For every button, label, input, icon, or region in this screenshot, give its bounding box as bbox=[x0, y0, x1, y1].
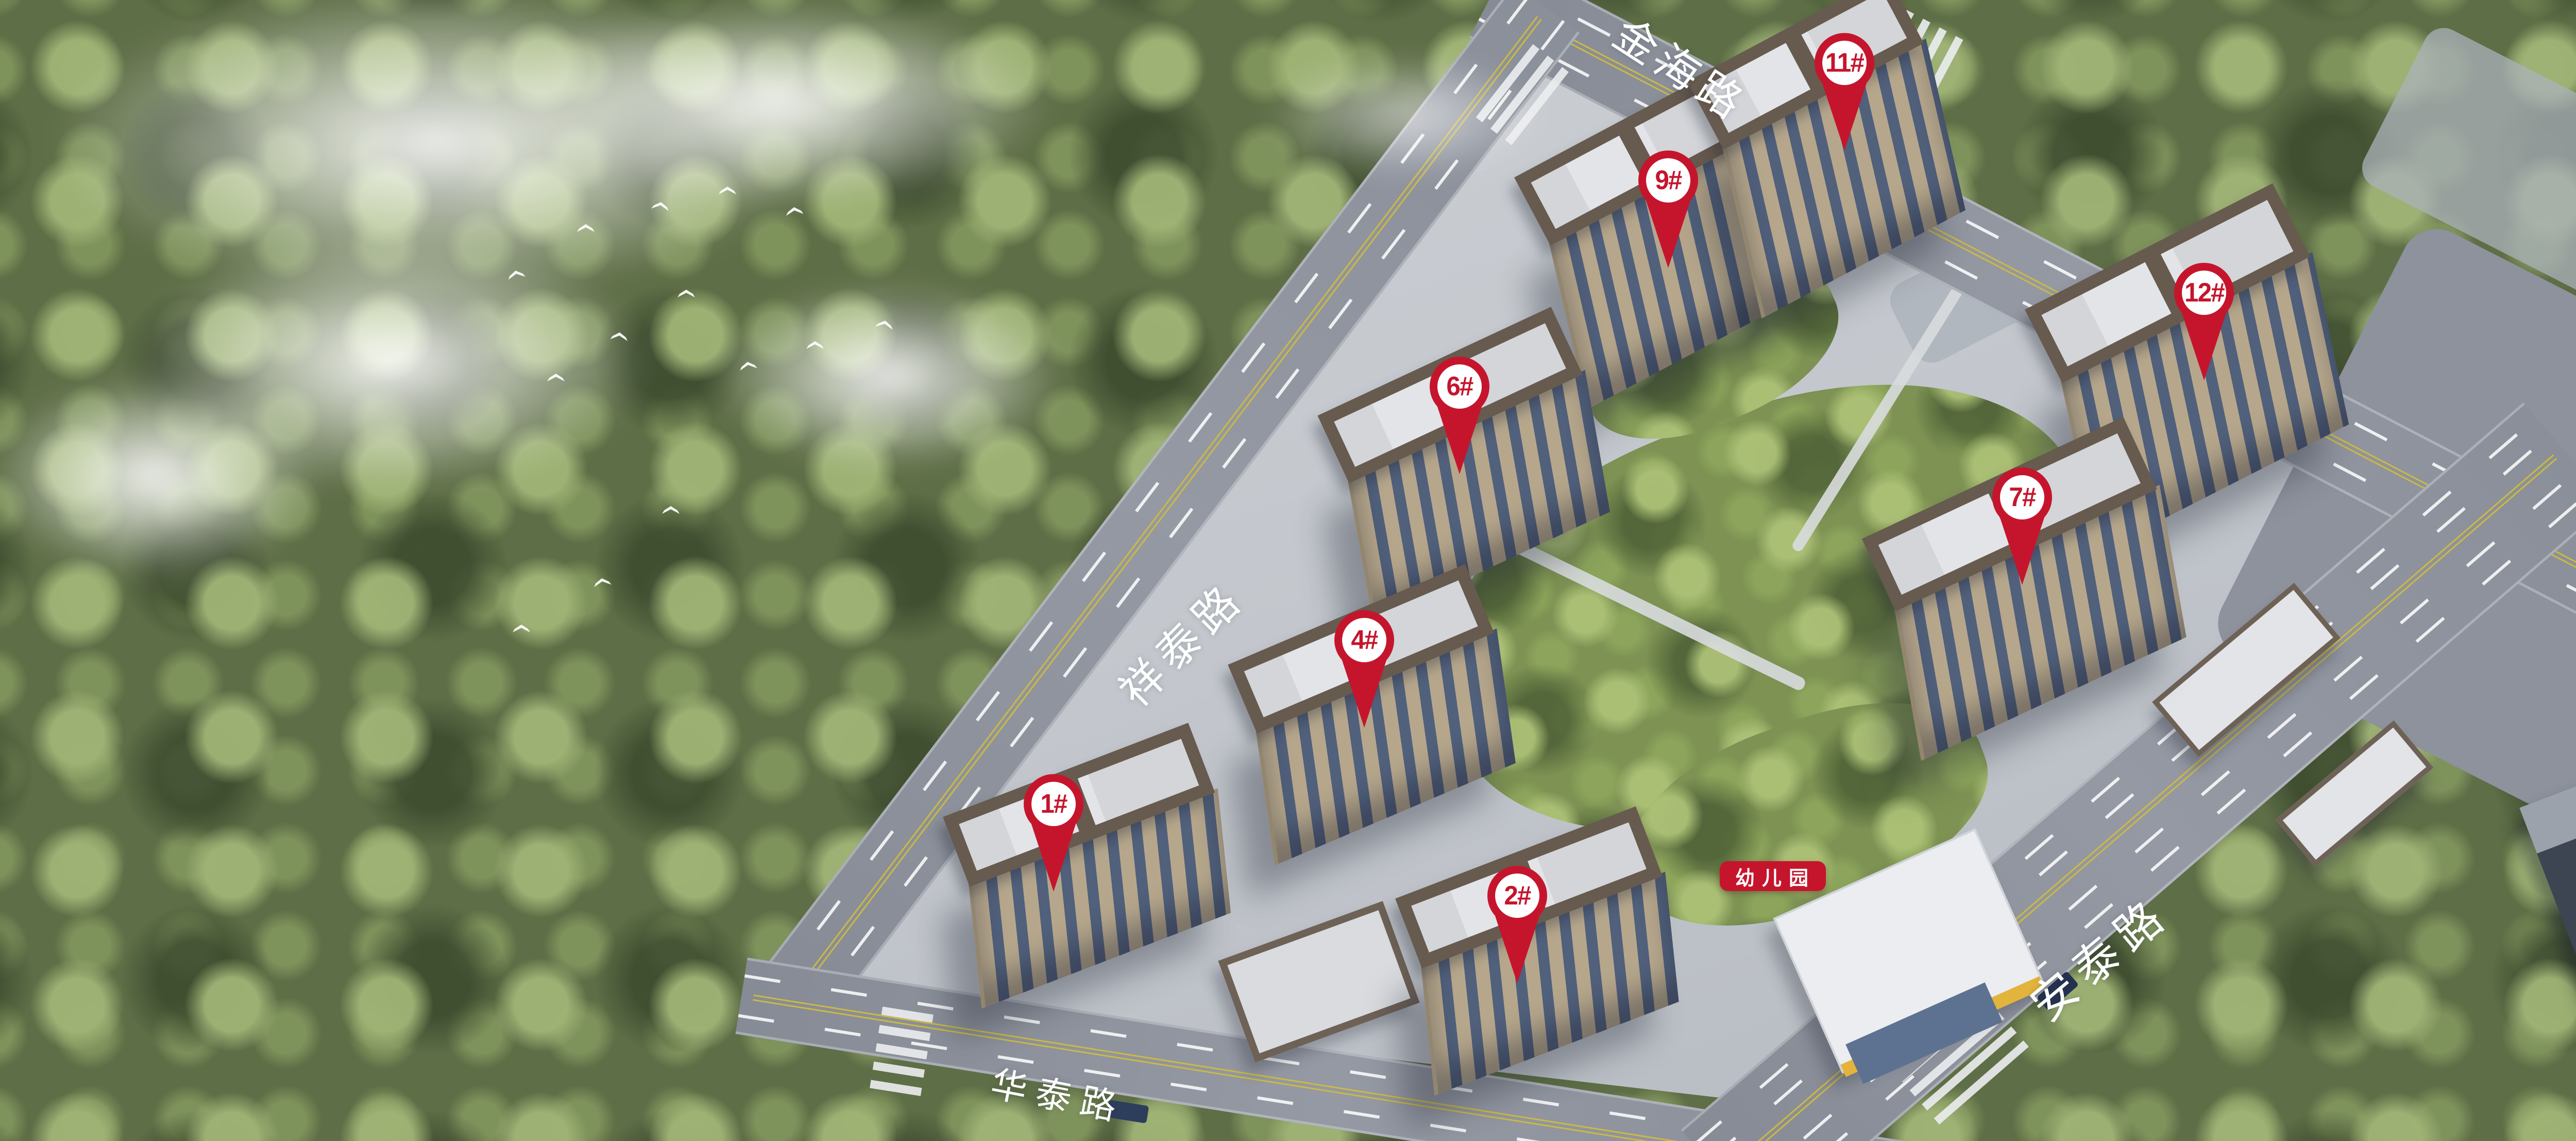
pin-label: 9# bbox=[1655, 167, 1681, 194]
pin-label: 1# bbox=[1040, 791, 1066, 817]
pin-circle-icon: 1# bbox=[1024, 774, 1083, 834]
pin-circle-icon: 12# bbox=[2174, 263, 2234, 323]
pin-circle-icon: 6# bbox=[1430, 357, 1489, 416]
pin-label: 12# bbox=[2184, 279, 2224, 306]
pin-circle-icon: 2# bbox=[1487, 866, 1547, 926]
kindergarten-badge: 幼儿园 bbox=[1720, 861, 1826, 891]
aerial-site-plan: 金海路 祥泰路 安泰路 华泰路 幼儿园 鸟瞰图 1# 2# 4# 6# 7# 9… bbox=[0, 0, 2576, 1141]
pin-label: 2# bbox=[1504, 882, 1530, 909]
pin-label: 7# bbox=[2009, 484, 2035, 511]
pin-circle-icon: 4# bbox=[1334, 610, 1394, 670]
pin-label: 11# bbox=[1825, 49, 1863, 76]
pin-circle-icon: 11# bbox=[1815, 33, 1874, 93]
pin-label: 6# bbox=[1446, 373, 1472, 400]
pin-circle-icon: 7# bbox=[1992, 467, 2052, 527]
pin-label: 4# bbox=[1351, 627, 1377, 653]
pin-circle-icon: 9# bbox=[1638, 150, 1698, 210]
